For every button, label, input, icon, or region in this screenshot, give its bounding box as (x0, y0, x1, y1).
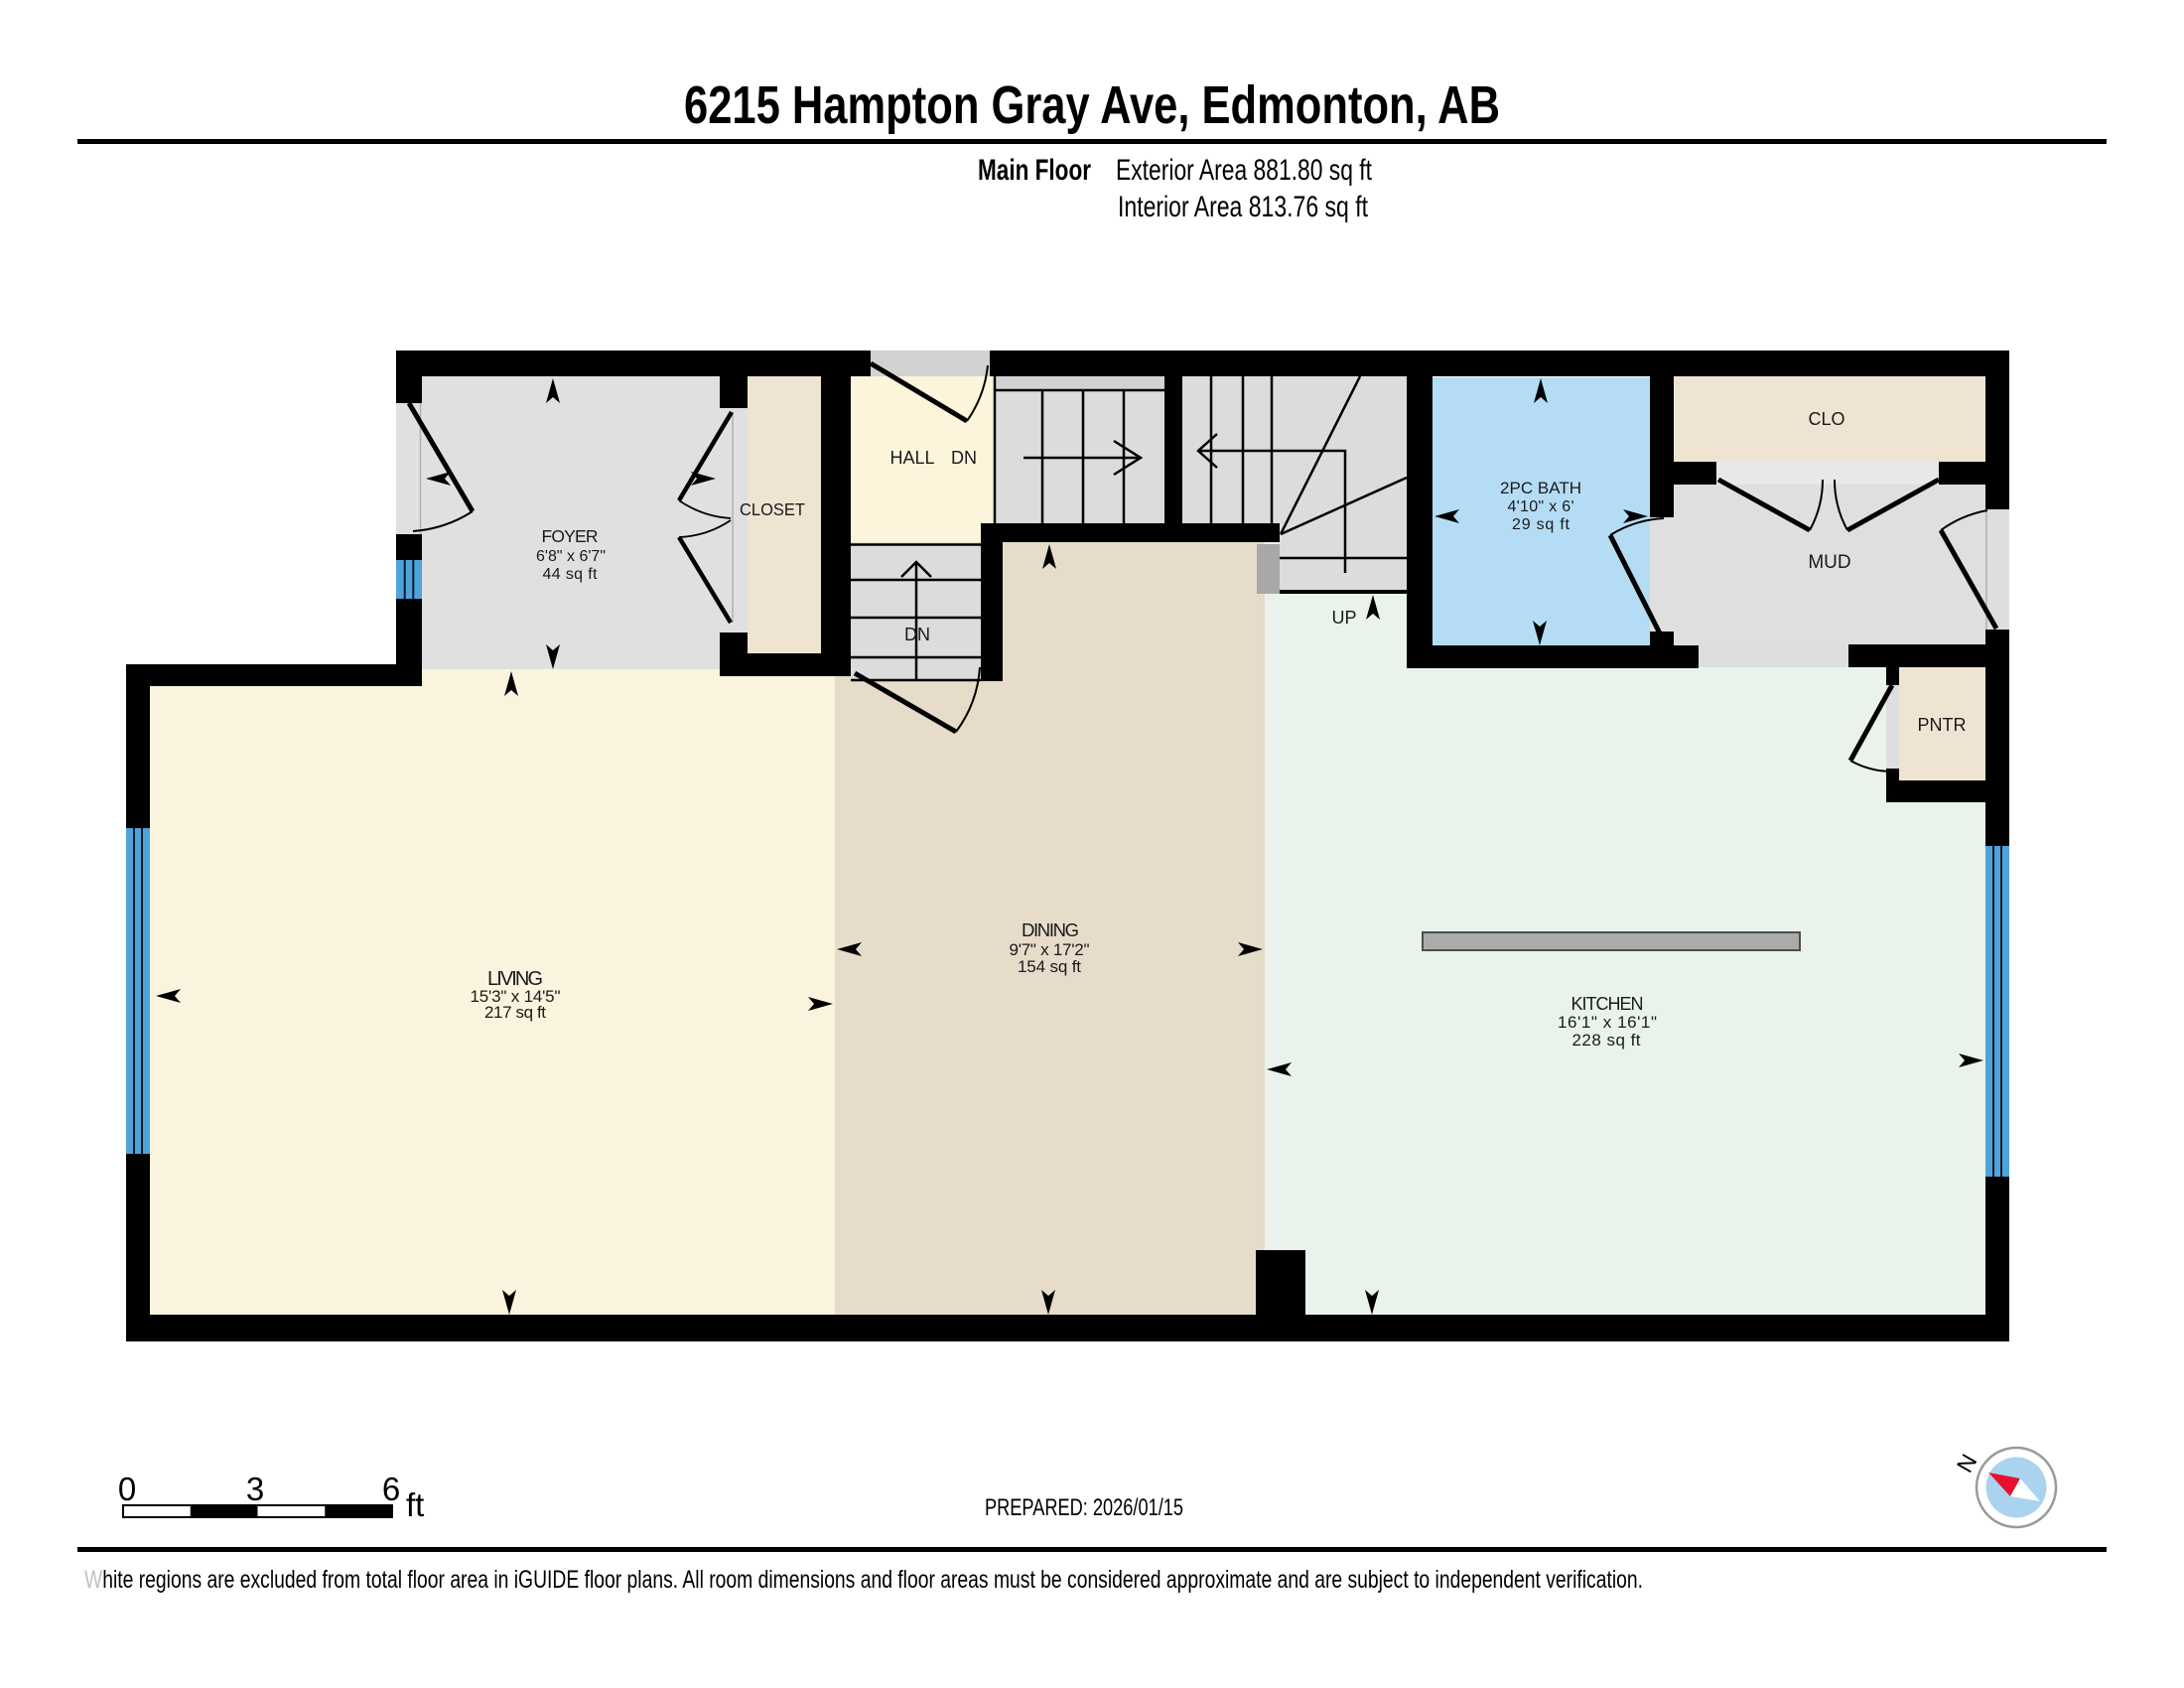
svg-text:UP: UP (1331, 608, 1356, 628)
svg-text:6215 Hampton Gray Ave, Edmonto: 6215 Hampton Gray Ave, Edmonton, AB (684, 75, 1500, 135)
svg-text:154 sq ft: 154 sq ft (1018, 957, 1081, 976)
svg-text:Main Floor: Main Floor (978, 154, 1091, 187)
svg-text:White regions are excluded fro: White regions are excluded from total fl… (84, 1566, 1643, 1594)
svg-text:29 sq ft: 29 sq ft (1512, 516, 1570, 533)
svg-text:FOYER: FOYER (542, 526, 599, 546)
svg-text:CLOSET: CLOSET (740, 499, 805, 519)
svg-text:DN: DN (951, 448, 977, 468)
svg-text:DN: DN (904, 625, 930, 644)
svg-text:3: 3 (246, 1471, 264, 1507)
svg-text:DINING: DINING (1022, 919, 1079, 940)
svg-text:2PC BATH: 2PC BATH (1500, 479, 1581, 497)
svg-text:Exterior Area 881.80 sq ft: Exterior Area 881.80 sq ft (1116, 154, 1373, 187)
svg-text:ft: ft (406, 1486, 424, 1523)
svg-text:0: 0 (118, 1471, 136, 1507)
svg-text:44 sq ft: 44 sq ft (543, 566, 599, 583)
svg-text:228 sq ft: 228 sq ft (1572, 1031, 1641, 1050)
svg-text:CLO: CLO (1808, 409, 1844, 429)
svg-text:KITCHEN: KITCHEN (1571, 994, 1644, 1014)
svg-text:6'8" x 6'7": 6'8" x 6'7" (536, 548, 606, 565)
svg-text:Interior Area 813.76 sq ft: Interior Area 813.76 sq ft (1118, 191, 1369, 223)
svg-text:MUD: MUD (1808, 552, 1850, 573)
svg-text:6: 6 (382, 1471, 400, 1507)
svg-text:PREPARED: 2026/01/15: PREPARED: 2026/01/15 (985, 1494, 1183, 1521)
svg-text:PNTR: PNTR (1918, 715, 1967, 735)
svg-text:4'10" x 6': 4'10" x 6' (1508, 498, 1574, 515)
svg-text:16'1" x 16'1": 16'1" x 16'1" (1558, 1013, 1657, 1032)
svg-text:217 sq ft: 217 sq ft (484, 1003, 546, 1022)
svg-text:HALL: HALL (889, 448, 934, 468)
